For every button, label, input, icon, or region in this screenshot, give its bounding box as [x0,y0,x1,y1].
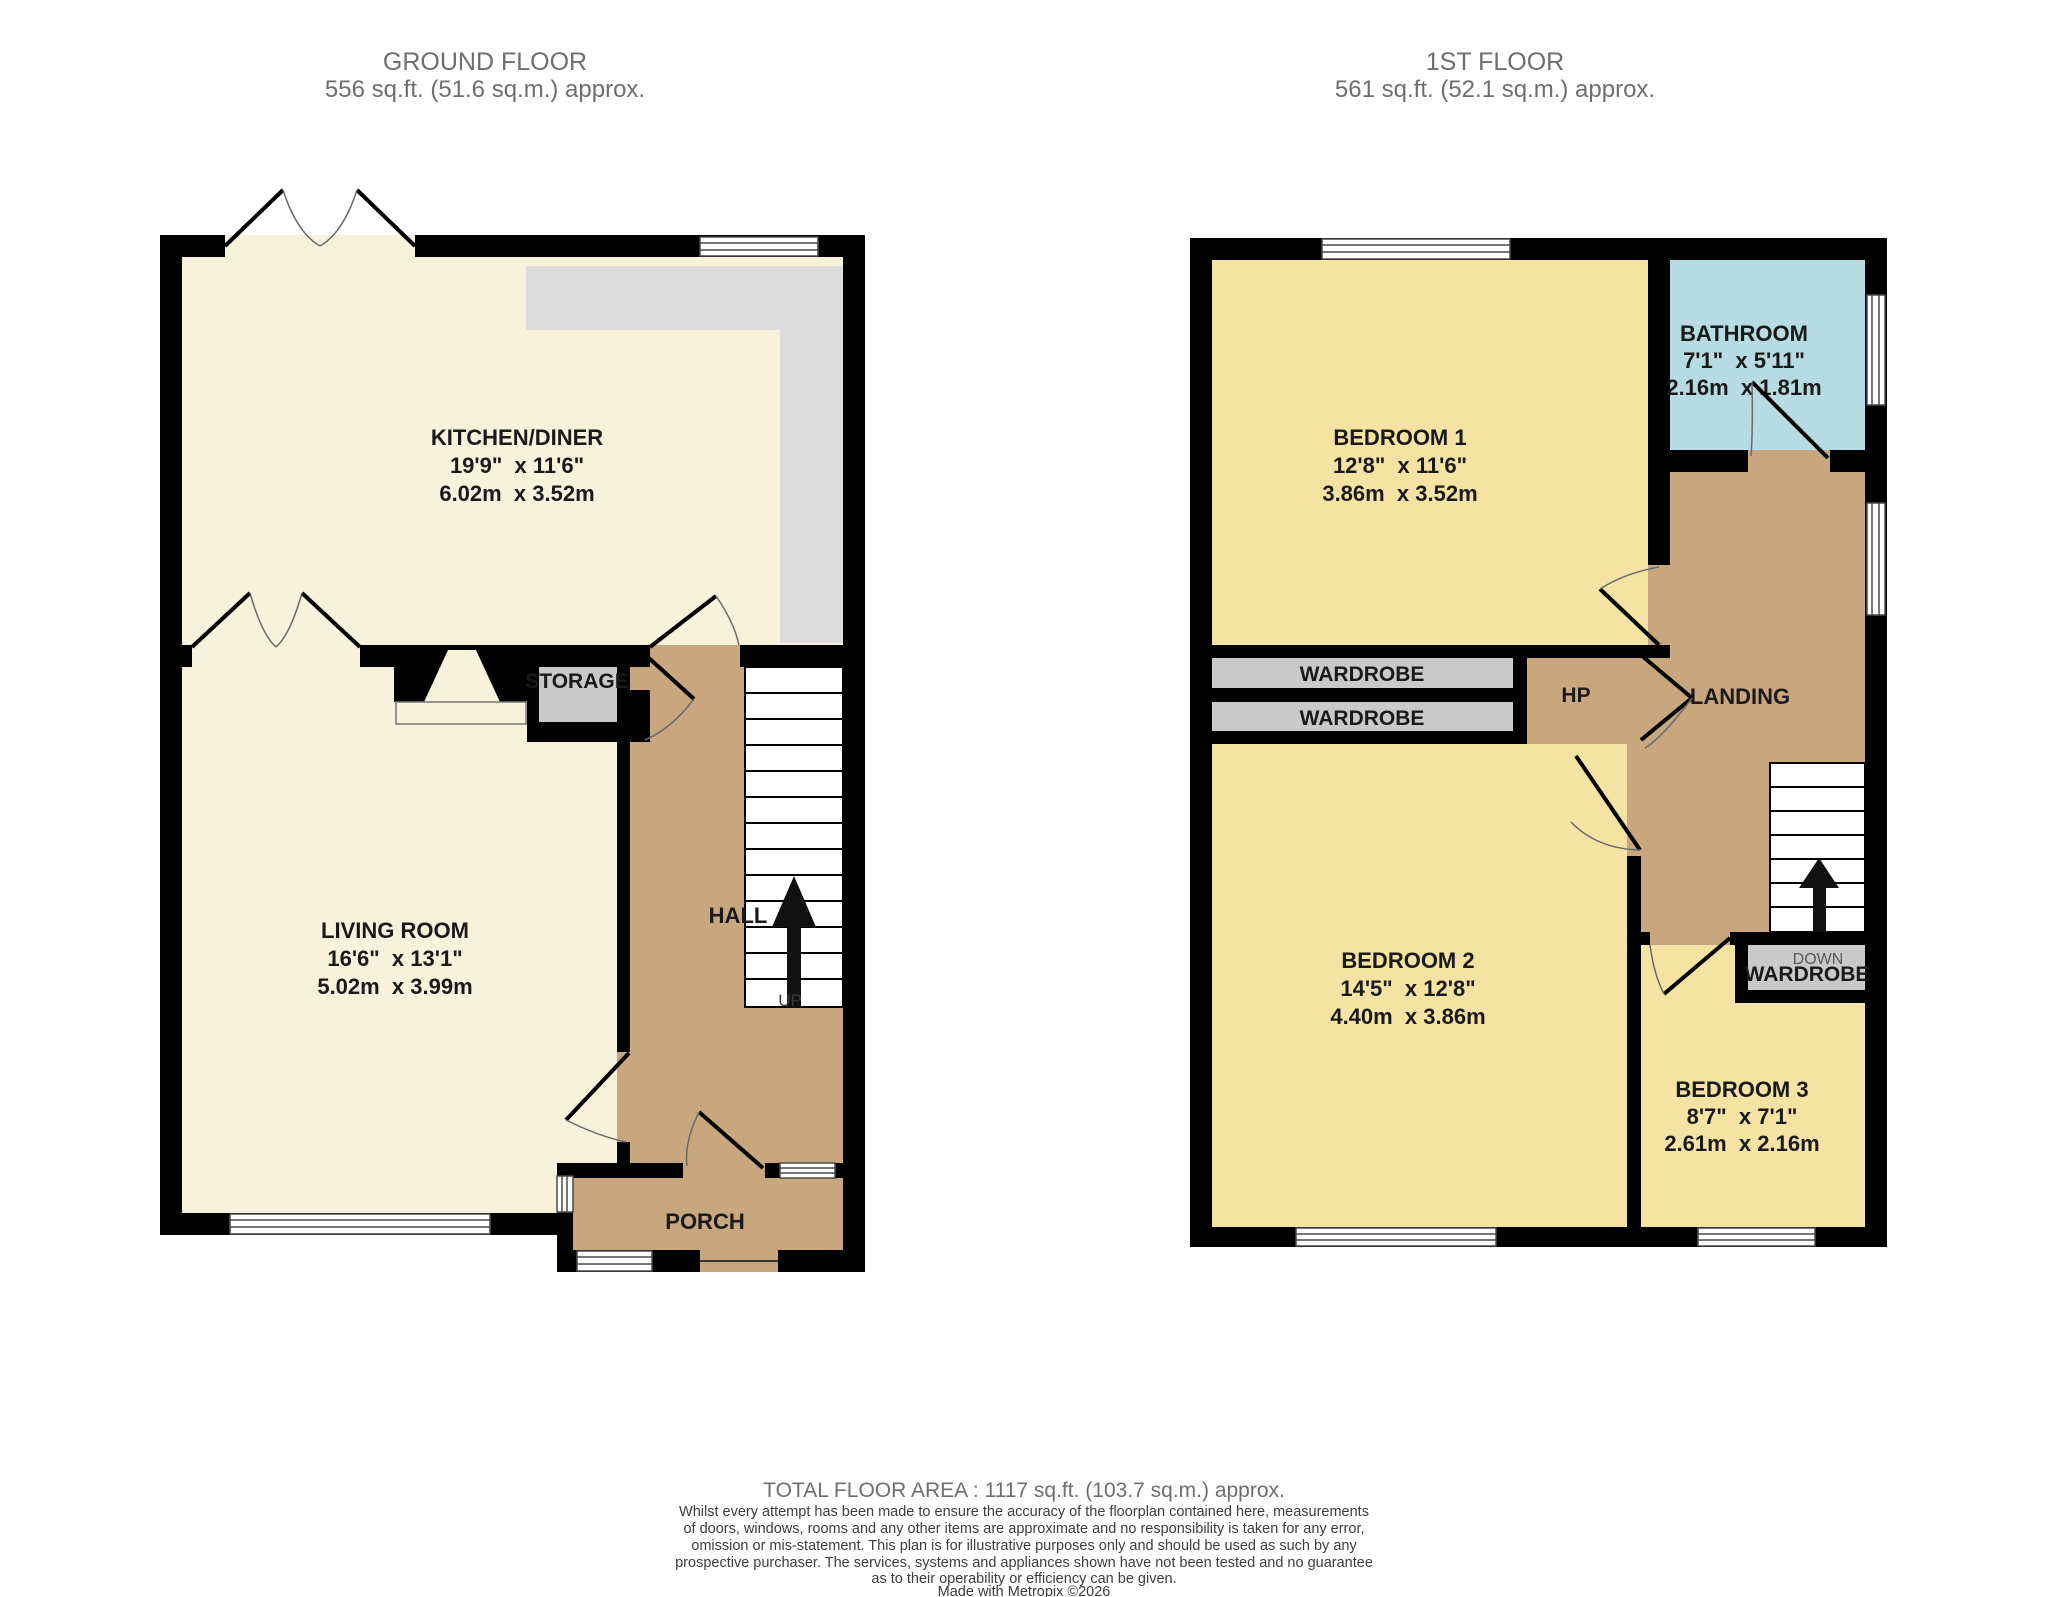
wall-segment [843,235,865,1272]
bedroom2-dims-imperial: 14'5" x 12'8" [1340,976,1475,1001]
first-floor-title: 1ST FLOOR [1426,48,1564,76]
bedroom1-dims-imperial: 12'8" x 11'6" [1333,453,1467,478]
living-room-dims-metric: 5.02m x 3.99m [317,974,472,999]
disclaimer-line: prospective purchaser. The services, sys… [675,1555,1373,1571]
window-frame [700,237,818,256]
wall-segment [1627,856,1641,1227]
bedroom3-dims-imperial: 8'7" x 7'1" [1687,1104,1798,1129]
down-arrow-icon [1813,886,1826,932]
hearth [396,702,526,724]
wall-segment [1190,645,1670,658]
window-frame [1296,1228,1496,1246]
door-opening [650,645,740,667]
wall-segment [1190,731,1527,744]
wardrobe-label: WARDROBE [1745,963,1870,986]
bedroom2-dims-metric: 4.40m x 3.86m [1330,1004,1485,1029]
wall-segment [1735,990,1887,1003]
bedroom1-dims-metric: 3.86m x 3.52m [1322,481,1477,506]
window-frame [1867,503,1885,615]
window [1296,1228,1496,1246]
first-floor-area: 561 sq.ft. (52.1 sq.m.) approx. [1335,76,1655,103]
kitchen-counter [526,266,843,330]
ground-floor-area: 556 sq.ft. (51.6 sq.m.) approx. [325,76,645,103]
window-frame [230,1214,490,1234]
floorplan-page: GROUND FLOOR 556 sq.ft. (51.6 sq.m.) app… [0,0,2048,1597]
door-opening [1748,450,1830,472]
bedroom1-label: BEDROOM 1 [1333,425,1466,450]
window [780,1163,835,1178]
window-frame [1698,1228,1815,1246]
ground-floor-plan: KITCHEN/DINER 19'9" x 11'6" 6.02m x 3.52… [160,190,865,1272]
wardrobe-label: WARDROBE [1300,707,1425,730]
double-door-opening [192,645,360,667]
window [1698,1228,1815,1246]
window [1867,295,1885,405]
total-floor-area: TOTAL FLOOR AREA : 1117 sq.ft. (103.7 sq… [763,1479,1285,1502]
wall-segment [617,1142,630,1163]
living-room-label: LIVING ROOM [321,918,469,943]
wardrobe-label: WARDROBE [1300,663,1425,686]
window-frame [557,1176,573,1212]
disclaimer-line: omission or mis-statement. This plan is … [691,1538,1357,1554]
wall-segment [160,235,182,1235]
wall-segment [617,667,630,1052]
staircase-down [1770,763,1865,932]
disclaimer-line: of doors, windows, rooms and any other i… [683,1521,1364,1537]
hp-label: HP [1561,684,1590,707]
kitchen-label: KITCHEN/DINER [431,425,603,450]
footer: TOTAL FLOOR AREA : 1117 sq.ft. (103.7 sq… [675,1479,1373,1597]
storage-label: STORAGE [525,670,628,693]
wall-segment [1212,688,1527,702]
landing-label: LANDING [1690,684,1790,709]
window-frame [1322,239,1510,259]
bathroom-dims-metric: 2.16m x 1.81m [1666,375,1821,400]
floorplan-canvas: GROUND FLOOR 556 sq.ft. (51.6 sq.m.) app… [0,0,2048,1597]
window-frame [577,1251,652,1271]
kitchen-dims-imperial: 19'9" x 11'6" [450,453,584,478]
window-frame [780,1163,835,1178]
kitchen-counter [780,330,843,643]
bedroom2-label: BEDROOM 2 [1341,948,1474,973]
porch-label: PORCH [665,1209,744,1234]
window [1867,503,1885,615]
kitchen-dims-metric: 6.02m x 3.52m [439,481,594,506]
ground-floor-title: GROUND FLOOR [383,48,587,76]
wall-segment [1190,238,1887,260]
hall-label: HALL [709,903,768,928]
window [700,237,818,256]
window [230,1214,490,1234]
living-room-dims-imperial: 16'6" x 13'1" [327,946,462,971]
door-opening [1648,565,1670,645]
bedroom3-label: BEDROOM 3 [1675,1077,1808,1102]
window [577,1251,652,1271]
first-floor-plan: BEDROOM 1 12'8" x 11'6" 3.86m x 3.52m BA… [1190,238,1887,1247]
bathroom-label: BATHROOM [1680,321,1808,346]
window [1322,239,1510,259]
staircase-up [745,667,843,1008]
credit-line: Made with Metropix ©2026 [938,1584,1111,1597]
window-frame [1867,295,1885,405]
bathroom-dims-imperial: 7'1" x 5'11" [1683,348,1805,373]
disclaimer-line: Whilst every attempt has been made to en… [679,1504,1369,1520]
wall-segment [1513,645,1527,744]
bedroom3-dims-metric: 2.61m x 2.16m [1664,1131,1819,1156]
window [557,1176,573,1212]
up-label: UP [778,991,802,1010]
wall-segment [1648,238,1670,450]
door-opening [683,1163,765,1178]
door-opening [1650,932,1730,945]
